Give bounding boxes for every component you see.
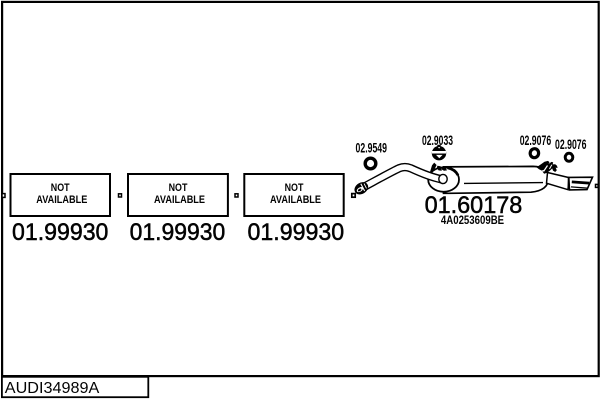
svg-text:AVAILABLE: AVAILABLE — [154, 194, 205, 206]
svg-text:02.9076: 02.9076 — [520, 133, 552, 148]
svg-text:4A0253609BE: 4A0253609BE — [441, 213, 504, 227]
svg-text:AVAILABLE: AVAILABLE — [36, 194, 87, 206]
svg-text:02.9076: 02.9076 — [555, 137, 587, 152]
svg-text:NOT: NOT — [51, 182, 70, 194]
svg-text:01.99930: 01.99930 — [248, 219, 345, 246]
svg-text:NOT: NOT — [169, 182, 188, 194]
svg-text:AVAILABLE: AVAILABLE — [270, 194, 321, 206]
svg-text:AUDI34989A: AUDI34989A — [5, 380, 100, 397]
svg-text:02.9549: 02.9549 — [356, 140, 388, 155]
svg-text:NOT: NOT — [285, 182, 304, 194]
svg-text:01.99930: 01.99930 — [12, 219, 108, 246]
svg-text:01.99930: 01.99930 — [130, 219, 226, 246]
